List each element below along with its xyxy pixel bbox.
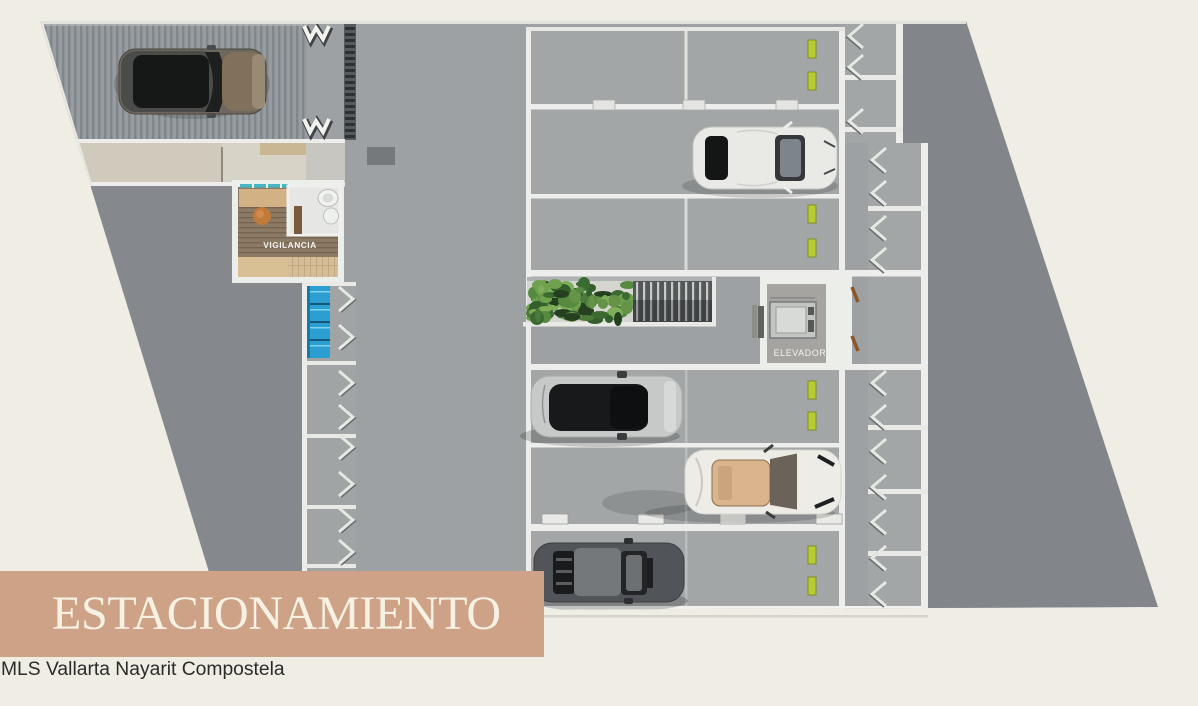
svg-text:VIGILANCIA: VIGILANCIA [263, 240, 316, 250]
svg-text:ELEVADOR: ELEVADOR [774, 348, 827, 358]
svg-text:ESTACIONAMIENTO: ESTACIONAMIENTO [52, 587, 501, 640]
svg-text:MLS Vallarta Nayarit Compostel: MLS Vallarta Nayarit Compostela [1, 659, 285, 680]
